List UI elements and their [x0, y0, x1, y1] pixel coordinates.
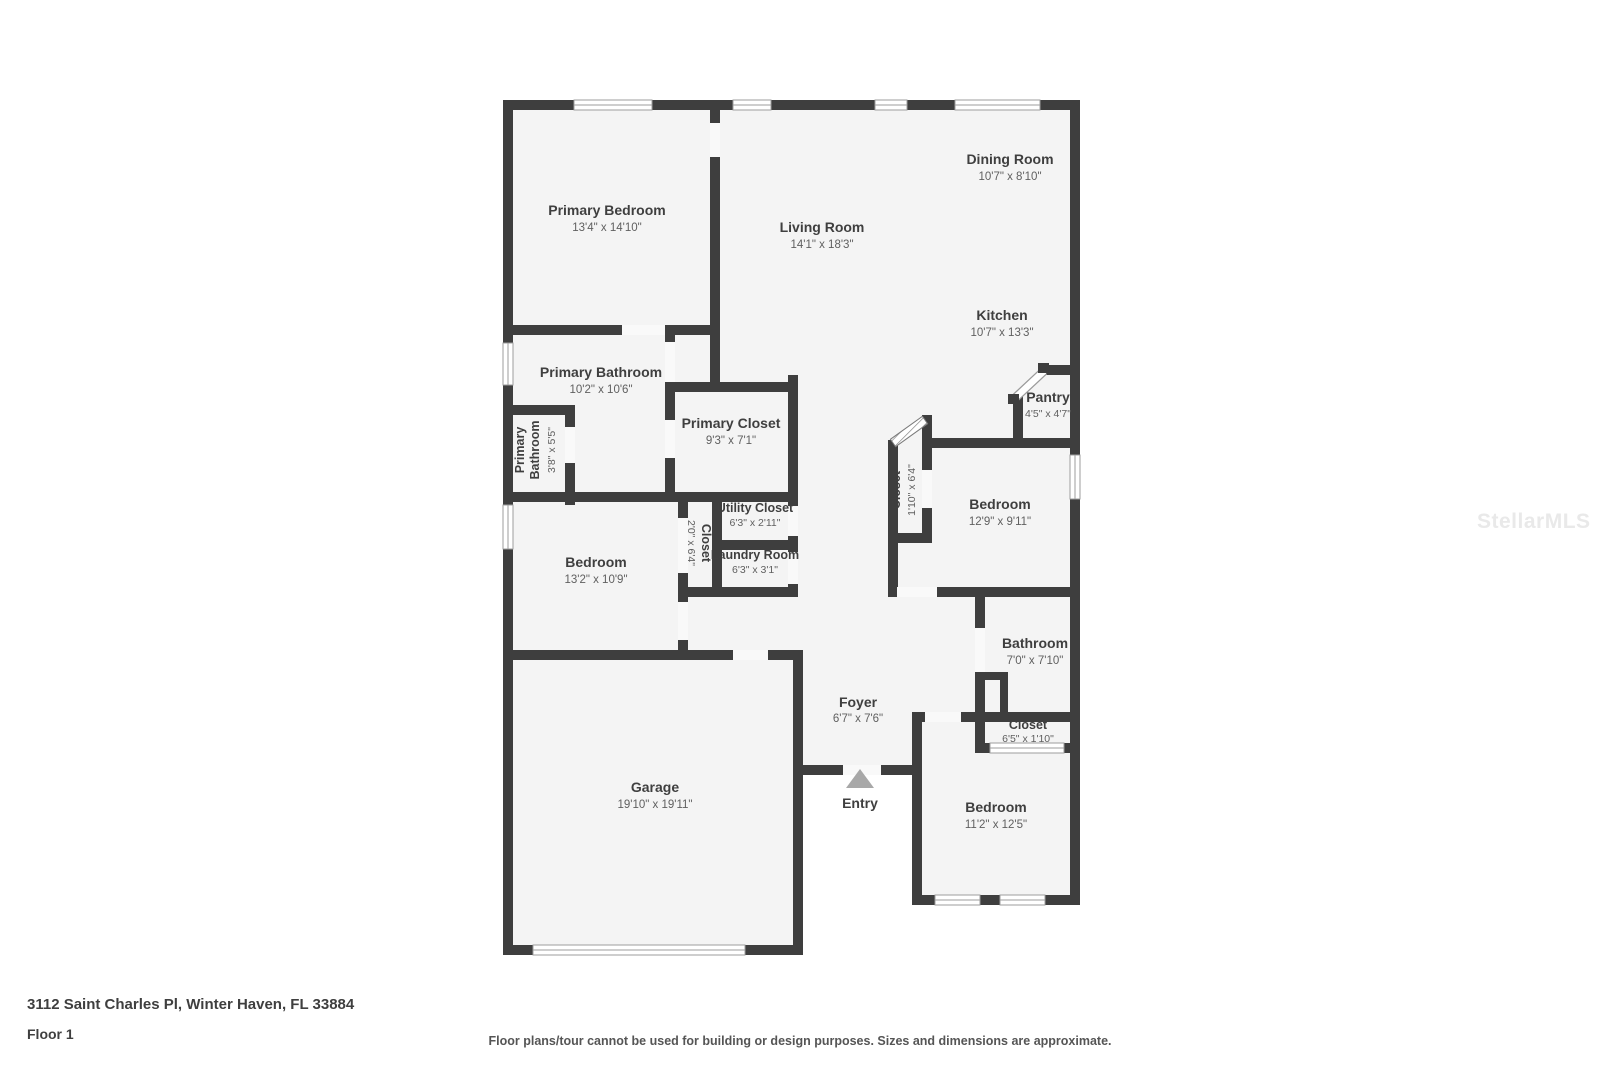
room-dims: 13'4" x 14'10"	[572, 222, 641, 234]
room-name: Primary Bedroom	[548, 202, 665, 218]
room-name: Bedroom	[969, 496, 1030, 512]
floor-plan-page: Entry Primary Bedroom 13'4" x 14'10" Liv…	[0, 0, 1600, 1066]
floor-plan-drawing: Entry Primary Bedroom 13'4" x 14'10" Liv…	[0, 0, 1600, 1066]
room-name: Garage	[631, 779, 679, 795]
room-name: Primary Bathroom	[540, 364, 662, 380]
door-opening	[665, 420, 675, 458]
disclaimer-text: Floor plans/tour cannot be used for buil…	[488, 1034, 1111, 1048]
room-name: Laundry Room	[711, 548, 799, 562]
room-dims: 11'2" x 12'5"	[965, 819, 1027, 831]
wall-segment	[665, 382, 798, 392]
wall-segment	[888, 533, 932, 543]
entry-marker: Entry	[842, 769, 878, 811]
room-name: Pantry	[1026, 389, 1070, 405]
entry-label: Entry	[842, 795, 878, 811]
door-opening	[733, 650, 768, 660]
room-name: Closet	[699, 524, 713, 563]
door-opening	[678, 602, 688, 640]
room-label-pantry: Pantry 4'5" x 4'7"	[1025, 389, 1071, 420]
room-dims: 13'2" x 10'9"	[564, 574, 627, 586]
room-dims: 1'10" x 6'4"	[906, 464, 918, 516]
door-opening	[975, 628, 985, 672]
wall-segment	[1000, 672, 1008, 712]
wall-segment	[678, 587, 798, 597]
room-name: Dining Room	[966, 151, 1053, 167]
door-opening	[565, 427, 575, 463]
door-opening	[922, 470, 932, 508]
room-dims: 10'7" x 8'10"	[978, 171, 1041, 183]
room-label-foyer: Foyer 6'7" x 7'6"	[833, 694, 883, 725]
wall-stub	[1008, 394, 1019, 404]
room-name: Foyer	[839, 694, 878, 710]
floor-label: Floor 1	[27, 1026, 74, 1042]
room-dims: 14'1" x 18'3"	[790, 239, 853, 251]
room-dims: 10'7" x 13'3"	[970, 327, 1033, 339]
room-label-closet-bedroom: Closet 6'5" x 1'10"	[1002, 718, 1054, 745]
room-name: Bedroom	[565, 554, 626, 570]
room-dims: 2'0" x 6'4"	[685, 520, 697, 566]
door-opening	[925, 712, 961, 722]
room-dims: 6'3" x 2'11"	[730, 517, 781, 529]
room-dims: 6'7" x 7'6"	[833, 713, 883, 725]
room-label-primary-bathroom-small: Primary Bathroom 3'8" x 5'5"	[513, 420, 558, 479]
stellar-mls-watermark: StellarMLS	[1477, 510, 1591, 534]
room-name-line1: Primary	[513, 427, 527, 474]
room-dims: 3'8" x 5'5"	[546, 427, 558, 473]
room-name: Bedroom	[965, 799, 1026, 815]
room-name: Living Room	[780, 219, 865, 235]
room-name: Primary Closet	[682, 415, 781, 431]
room-name: Closet	[1009, 718, 1048, 732]
room-name: Closet	[889, 470, 903, 509]
room-name: Utility Closet	[717, 501, 794, 515]
wall-segment	[930, 438, 1080, 448]
wall-segment	[912, 712, 922, 905]
room-name-line2: Bathroom	[528, 420, 542, 479]
room-dims: 19'10" x 19'11"	[617, 799, 692, 811]
door-opening	[710, 123, 720, 157]
room-dims: 6'3" x 3'1"	[732, 564, 778, 576]
room-name: Bathroom	[1002, 635, 1068, 651]
door-opening	[665, 342, 675, 382]
room-dims: 12'9" x 9'11"	[969, 516, 1031, 528]
property-address: 3112 Saint Charles Pl, Winter Haven, FL …	[27, 996, 354, 1013]
wall-segment	[793, 650, 803, 955]
room-dims: 6'5" x 1'10"	[1002, 733, 1054, 745]
wall-segment	[1070, 100, 1080, 905]
wall-segment	[503, 325, 720, 335]
room-dims: 7'0" x 7'10"	[1007, 655, 1064, 667]
room-dims: 9'3" x 7'1"	[706, 435, 756, 447]
wall-segment	[503, 405, 575, 415]
door-opening	[897, 587, 937, 597]
room-name: Kitchen	[976, 307, 1027, 323]
wall-stub	[1038, 363, 1049, 373]
room-dims: 10'2" x 10'6"	[569, 384, 632, 396]
room-dims: 4'5" x 4'7"	[1025, 408, 1071, 420]
door-opening	[622, 325, 665, 335]
